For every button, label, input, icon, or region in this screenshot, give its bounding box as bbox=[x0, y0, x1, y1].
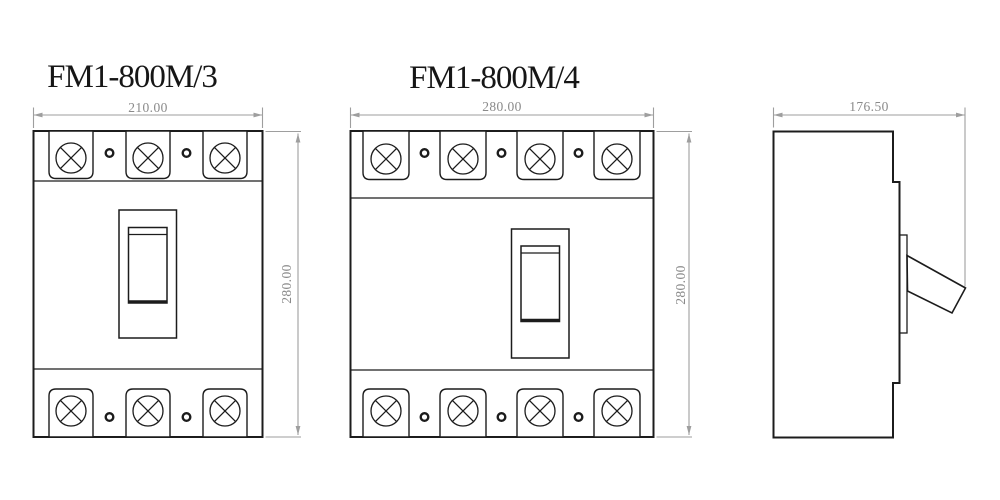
terminal-cover-separator bbox=[351, 198, 654, 370]
view-title-3pole: FM1-800M/3 bbox=[47, 59, 217, 95]
handle-bezel bbox=[900, 235, 908, 333]
breaker-dimension-drawing: FM1-800M/3 210.00 bbox=[0, 0, 1000, 500]
mounting-hole-icon bbox=[421, 413, 429, 421]
toggle-switch bbox=[119, 210, 177, 338]
width-dimension-label: 280.00 bbox=[482, 99, 522, 114]
terminal-pad-screw-icon bbox=[363, 131, 409, 180]
terminal-pad-screw-icon bbox=[126, 131, 170, 179]
width-dimension-label: 210.00 bbox=[128, 100, 168, 115]
top-terminal-row bbox=[363, 131, 640, 180]
terminal-pad-screw-icon bbox=[440, 389, 486, 437]
side-profile bbox=[774, 132, 900, 438]
terminal-pad-screw-icon bbox=[203, 131, 247, 179]
bottom-terminal-row bbox=[49, 389, 247, 437]
height-dimension-label: 280.00 bbox=[279, 264, 294, 304]
toggle-switch bbox=[512, 229, 570, 358]
height-dimension-3pole: 280.00 bbox=[266, 132, 302, 438]
mounting-hole-icon bbox=[498, 413, 506, 421]
terminal-pad-screw-icon bbox=[594, 131, 640, 180]
bottom-terminal-row bbox=[363, 389, 640, 437]
side-view: 176.50 bbox=[774, 99, 966, 438]
terminal-pad-screw-icon bbox=[594, 389, 640, 437]
top-terminal-row bbox=[49, 131, 247, 179]
width-dimension-3pole: 210.00 bbox=[34, 100, 263, 128]
breaker-dimension-drawing-page: FM1-800M/3 210.00 bbox=[0, 0, 1000, 500]
mounting-hole-icon bbox=[106, 413, 114, 421]
depth-dimension: 176.50 bbox=[774, 99, 966, 287]
mounting-hole-icon bbox=[575, 149, 583, 157]
front-view-4pole: FM1-800M/4 280.00 bbox=[351, 60, 693, 437]
width-dimension-4pole: 280.00 bbox=[351, 99, 654, 128]
terminal-pad-screw-icon bbox=[203, 389, 247, 437]
mounting-hole-icon bbox=[498, 149, 506, 157]
terminal-pad-screw-icon bbox=[440, 131, 486, 180]
terminal-pad-screw-icon bbox=[49, 131, 93, 179]
height-dimension-4pole: 280.00 bbox=[657, 132, 693, 438]
front-view-3pole: FM1-800M/3 210.00 bbox=[34, 59, 302, 437]
view-title-4pole: FM1-800M/4 bbox=[409, 60, 579, 96]
depth-dimension-label: 176.50 bbox=[849, 99, 889, 114]
terminal-pad-screw-icon bbox=[517, 131, 563, 180]
terminal-pad-screw-icon bbox=[363, 389, 409, 437]
terminal-pad-screw-icon bbox=[49, 389, 93, 437]
mounting-hole-icon bbox=[575, 413, 583, 421]
toggle-handle bbox=[129, 228, 168, 304]
terminal-pad-screw-icon bbox=[126, 389, 170, 437]
mounting-hole-icon bbox=[183, 413, 191, 421]
mounting-hole-icon bbox=[183, 149, 191, 157]
toggle-handle bbox=[521, 246, 560, 322]
toggle-handle-side bbox=[907, 256, 966, 314]
height-dimension-label: 280.00 bbox=[673, 265, 688, 305]
mounting-hole-icon bbox=[421, 149, 429, 157]
extension-line bbox=[774, 108, 966, 287]
terminal-pad-screw-icon bbox=[517, 389, 563, 437]
mounting-hole-icon bbox=[106, 149, 114, 157]
